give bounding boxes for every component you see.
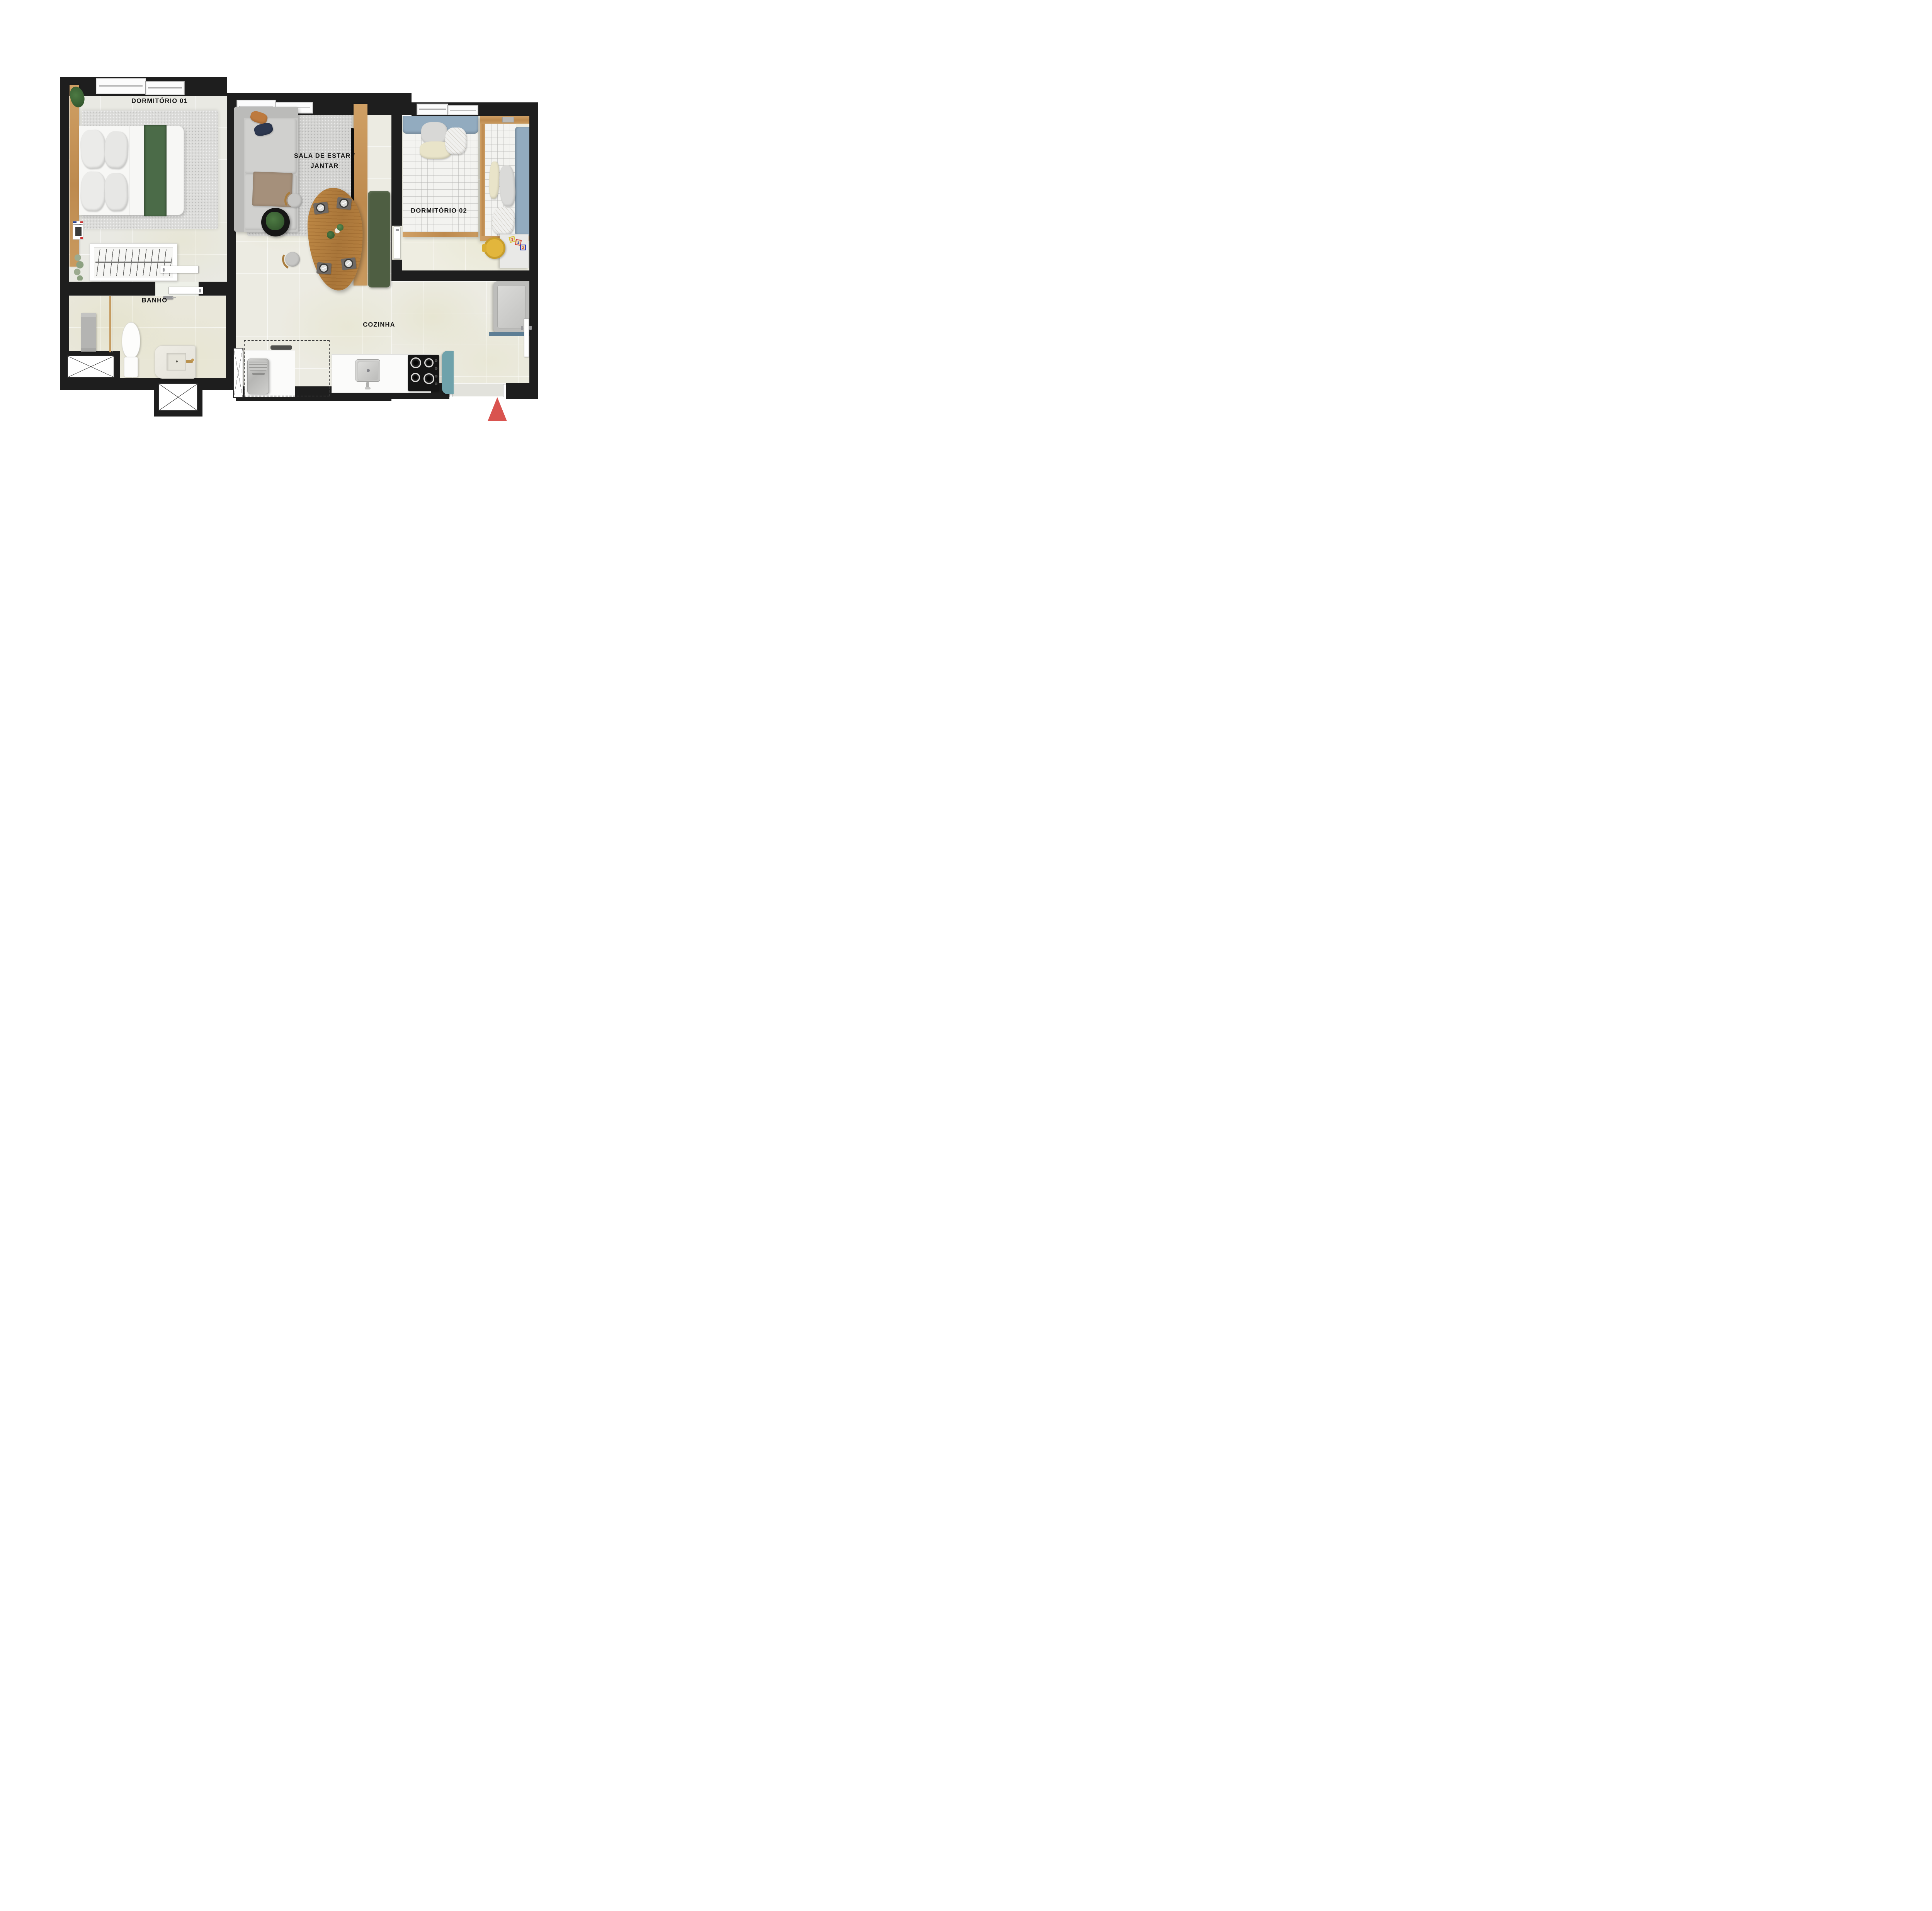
sofa-back-left bbox=[234, 107, 244, 232]
threshold-jamb-right bbox=[503, 384, 506, 397]
toilet-tank bbox=[124, 357, 138, 377]
plant-icon bbox=[266, 212, 284, 230]
plate-icon bbox=[344, 258, 354, 269]
place-setting bbox=[341, 257, 356, 270]
cooktop bbox=[408, 355, 439, 391]
window-mullion-icon bbox=[99, 85, 143, 87]
door-handle-icon bbox=[529, 326, 532, 330]
door-handle-icon bbox=[521, 326, 523, 330]
book-red-square bbox=[80, 237, 83, 239]
plant-icon bbox=[327, 231, 335, 239]
burner-icon bbox=[424, 358, 434, 367]
chair-armrest-icon bbox=[482, 244, 486, 252]
napkin-icon bbox=[342, 202, 346, 205]
wall-bedroom1-bathroom bbox=[60, 282, 236, 296]
room-label-living-line2: JANTAR bbox=[311, 163, 339, 170]
shower-glass-partition bbox=[112, 296, 112, 352]
place-setting bbox=[336, 197, 352, 210]
door-handle-icon bbox=[163, 268, 165, 272]
duct-shaft-cross-icon bbox=[233, 348, 243, 398]
shower-seat bbox=[81, 313, 96, 352]
room-label-kitchen: COZINHA bbox=[363, 321, 395, 329]
window-mullion-icon bbox=[148, 87, 182, 88]
plate-icon bbox=[339, 198, 349, 209]
plate-icon bbox=[319, 263, 329, 273]
room-label-bedroom1: DORMITÓRIO 01 bbox=[131, 98, 188, 105]
bed-foot-rail-wood bbox=[403, 232, 478, 237]
door-handle-icon bbox=[396, 229, 399, 231]
fridge-grill-icon bbox=[249, 360, 267, 371]
faucet-handle-icon bbox=[191, 359, 194, 361]
window-mullion-icon bbox=[450, 110, 476, 111]
sink-drain-icon bbox=[176, 360, 178, 362]
window-bedroom1-sash-a bbox=[96, 78, 146, 94]
floor-plan: CHIPPERFIELD DORMITÓRIO 01 BANHO bbox=[0, 0, 606, 440]
book-flag-stripe bbox=[73, 221, 83, 223]
pillow-patterned bbox=[445, 128, 467, 155]
napkin-icon bbox=[321, 267, 326, 270]
book-photo bbox=[75, 227, 82, 236]
chair-seat bbox=[285, 252, 300, 267]
door-leaf-bedroom1 bbox=[160, 266, 199, 273]
faucet-handle-icon bbox=[365, 387, 371, 389]
counter-object bbox=[270, 345, 292, 350]
wall-left bbox=[60, 77, 69, 379]
napkin-icon bbox=[319, 206, 323, 210]
chair-seat bbox=[287, 193, 302, 208]
bed-runner-green bbox=[144, 125, 167, 216]
duct-shaft-cross-icon bbox=[67, 355, 114, 378]
toilet-bowl bbox=[122, 322, 140, 359]
knob-icon bbox=[435, 367, 437, 370]
room-label-bathroom: BANHO bbox=[142, 297, 168, 304]
north-triangle-icon bbox=[488, 397, 507, 421]
single-bed-b bbox=[480, 116, 529, 241]
napkin-icon bbox=[347, 262, 351, 265]
yellow-chair bbox=[484, 237, 505, 259]
pillow bbox=[104, 173, 128, 211]
burner-icon bbox=[410, 357, 421, 368]
window-mullion-icon bbox=[419, 109, 446, 110]
pillow bbox=[80, 171, 106, 211]
threshold-service bbox=[449, 383, 506, 396]
door-leaf-service bbox=[524, 318, 529, 357]
wall-bedroom2-service bbox=[391, 270, 538, 281]
window-bedroom2-sash-b bbox=[447, 105, 478, 115]
burner-icon bbox=[411, 373, 420, 382]
refrigerator bbox=[247, 359, 269, 394]
storage-box bbox=[502, 117, 514, 122]
wall-right bbox=[529, 102, 538, 399]
sink-drain-icon bbox=[367, 369, 370, 372]
duct-shaft-cross-icon bbox=[158, 383, 198, 411]
teal-appliance bbox=[442, 351, 454, 394]
wardrobe bbox=[90, 243, 177, 281]
burner-icon bbox=[423, 373, 434, 384]
plate-icon bbox=[315, 203, 326, 213]
room-label-bedroom2: DORMITÓRIO 02 bbox=[411, 207, 467, 215]
towel-rail-wood bbox=[109, 296, 111, 352]
kitchen-sink bbox=[355, 359, 380, 382]
window-bedroom2-sash-a bbox=[417, 104, 448, 115]
door-leaf-bedroom2 bbox=[394, 226, 400, 259]
dining-bench-green bbox=[368, 191, 390, 287]
pillow bbox=[104, 131, 129, 169]
pillow bbox=[80, 129, 106, 169]
book-title: CHIPPERFIELD bbox=[73, 223, 83, 226]
double-bed bbox=[79, 126, 184, 215]
knob-icon bbox=[435, 383, 437, 385]
knob-icon bbox=[435, 375, 437, 377]
dining-chair bbox=[282, 249, 303, 270]
laundry-shelf-blue bbox=[489, 332, 529, 336]
window-bedroom1-sash-b bbox=[145, 81, 185, 95]
dining-chair bbox=[284, 190, 305, 211]
book: CHIPPERFIELD bbox=[73, 221, 83, 240]
bathroom-sink-counter bbox=[155, 345, 196, 379]
knob-icon bbox=[435, 359, 437, 362]
room-label-living-line1: SALA DE ESTAR / bbox=[294, 153, 355, 160]
plant-icon bbox=[337, 224, 344, 231]
bed-side-rail-wood bbox=[480, 124, 485, 236]
toy-block: 2 bbox=[520, 245, 526, 250]
washing-machine-top bbox=[497, 285, 526, 328]
place-setting bbox=[316, 262, 332, 274]
wardrobe-rod bbox=[95, 262, 172, 263]
toilet bbox=[121, 322, 141, 379]
door-handle-icon bbox=[199, 289, 201, 292]
single-bed-a bbox=[403, 116, 478, 237]
door-leaf-bathroom bbox=[168, 287, 203, 294]
fridge-handle-icon bbox=[252, 373, 265, 375]
place-setting bbox=[313, 202, 329, 215]
bed-runner-blue bbox=[515, 127, 529, 236]
eucalyptus-plant-icon bbox=[73, 252, 84, 281]
duvet-fold bbox=[129, 126, 130, 216]
shower-arm-icon bbox=[172, 297, 176, 298]
